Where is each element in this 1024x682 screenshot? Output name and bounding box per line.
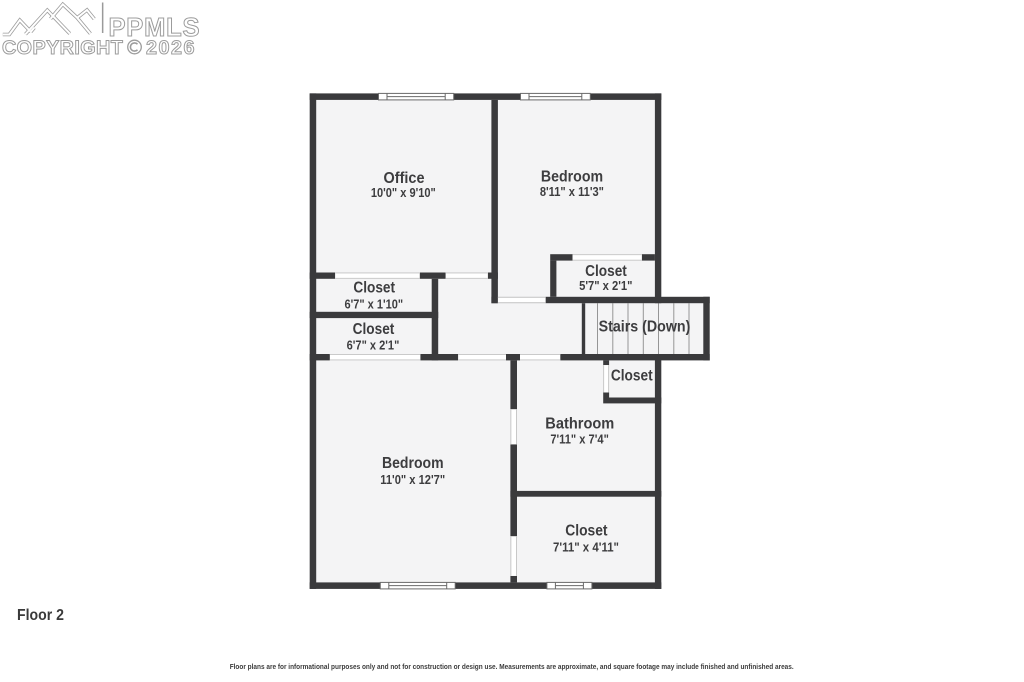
svg-text:7'11" x 7'4": 7'11" x 7'4" — [550, 432, 609, 447]
svg-text:Bedroom: Bedroom — [382, 455, 444, 472]
svg-text:10'0" x 9'10": 10'0" x 9'10" — [371, 185, 436, 200]
svg-text:Floor plans are for informatio: Floor plans are for informational purpos… — [230, 664, 794, 671]
svg-text:Floor 2: Floor 2 — [17, 607, 64, 624]
svg-text:11'0" x 12'7": 11'0" x 12'7" — [380, 472, 445, 487]
svg-text:8'11" x 11'3": 8'11" x 11'3" — [540, 184, 604, 199]
svg-text:2026: 2026 — [146, 37, 196, 59]
svg-text:Bedroom: Bedroom — [541, 168, 603, 185]
svg-text:7'11" x 4'11": 7'11" x 4'11" — [553, 540, 619, 555]
svg-text:5'7" x 2'1": 5'7" x 2'1" — [579, 278, 632, 293]
svg-text:Bathroom: Bathroom — [545, 416, 614, 433]
svg-text:COPYRIGHT: COPYRIGHT — [2, 37, 123, 59]
svg-text:Closet: Closet — [353, 280, 395, 297]
svg-text:Stairs (Down): Stairs (Down) — [599, 319, 691, 336]
svg-text:Closet: Closet — [565, 522, 607, 539]
svg-text:6'7" x 2'1": 6'7" x 2'1" — [347, 338, 400, 353]
svg-text:6'7" x 1'10": 6'7" x 1'10" — [345, 296, 404, 311]
svg-text:Closet: Closet — [353, 321, 395, 338]
svg-text:Closet: Closet — [611, 367, 653, 384]
